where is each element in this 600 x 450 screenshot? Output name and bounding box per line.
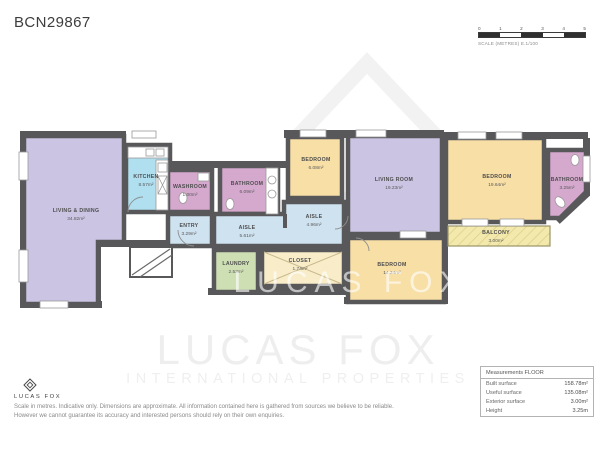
room-area: 4.96m² [307,222,322,228]
measurement-value: 3.25m [572,408,588,414]
measurement-label: Height [486,408,502,414]
room-area: 3.25m² [560,185,575,191]
room-label: LAUNDRY [222,261,250,267]
room-area: 3.00m² [489,238,504,244]
room-bedroom-right [446,138,544,222]
room-label: ENTRY [180,223,199,229]
room-label: BALCONY [482,230,510,236]
room-entry [168,214,212,246]
measurements-box: Measurements FLOOR Built surface 158.78m… [480,366,594,417]
measurement-label: Useful surface [486,390,522,396]
room-area: 14.24m² [383,270,401,276]
room-label: AISLE [306,214,323,220]
lucasfox-logo-icon [23,378,37,392]
room-area: 2.53m² [229,269,244,275]
aisle-divider-wall [283,214,287,228]
measurement-row: Exterior surface 3.00m² [481,397,593,406]
disclaimer-line-2: However we cannot guarantee its accuracy… [14,412,459,421]
disclaimer: Scale in metres. Indicative only. Dimens… [14,403,459,422]
disclaimer-line-1: Scale in metres. Indicative only. Dimens… [14,403,459,412]
room-label: BEDROOM [301,157,330,163]
measurement-row: Built surface 158.78m² [481,379,593,388]
room-label: AISLE [239,225,256,231]
room-bathroom-right [548,150,586,218]
measurement-value: 135.08m² [564,390,588,396]
stairwell [130,247,172,277]
room-area: 19.23m² [385,185,403,191]
room-label: LIVING & DINING [53,208,100,214]
measurements-header: Measurements FLOOR [481,367,593,379]
room-bedroom-bottom [348,238,444,302]
room-label: KITCHEN [133,174,158,180]
measurement-row: Useful surface 135.08m² [481,388,593,397]
measurement-label: Built surface [486,381,517,387]
measurement-label: Exterior surface [486,399,525,405]
room-area: 1.00m² [183,192,198,198]
room-label: LIVING ROOM [375,177,413,183]
room-label: BEDROOM [377,262,406,268]
room-label: CLOSET [289,258,312,264]
measurement-value: 3.00m² [571,399,588,405]
footer-brand-name: LUCAS FOX [14,394,74,400]
footer-brand: LUCAS FOX [14,378,74,400]
room-area: 1.74m² [293,266,308,272]
room-area: 34.82m² [67,216,85,222]
room-label: BATHROOM [551,177,584,183]
room-area: 5.61m² [240,233,255,239]
room-area: 6.08m² [309,165,324,171]
measurement-value: 158.78m² [564,381,588,387]
room-living-room [348,136,442,234]
room-area: 8.57m² [139,182,154,188]
room-label: WASHROOM [173,184,207,190]
room-label: BATHROOM [231,181,264,187]
room-area: 6.09m² [240,189,255,195]
room-label: BEDROOM [482,174,511,180]
measurement-row: Height 3.25m [481,407,593,416]
room-area: 19.64m² [488,182,506,188]
room-area: 3.29m² [182,231,197,237]
